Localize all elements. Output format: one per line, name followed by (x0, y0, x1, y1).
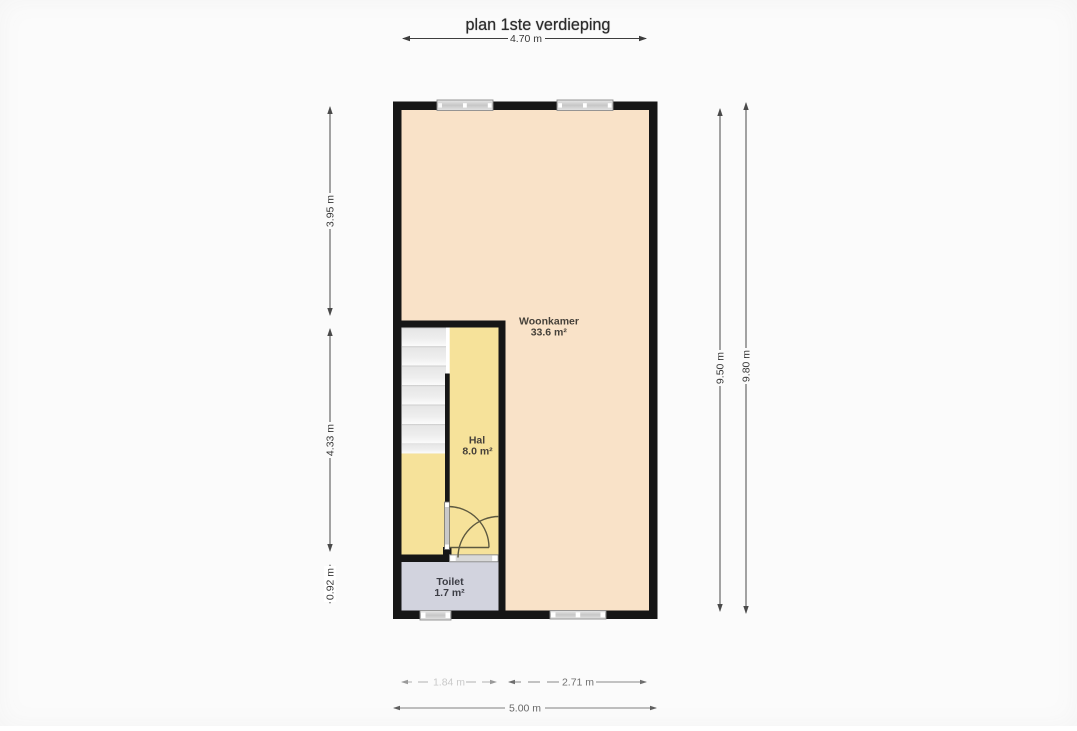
svg-text:5.00 m: 5.00 m (509, 703, 541, 715)
svg-text:1.7 m²: 1.7 m² (434, 587, 465, 599)
svg-text:3.95 m: 3.95 m (325, 195, 337, 227)
svg-text:4.70 m: 4.70 m (510, 33, 542, 45)
svg-text:9.50 m: 9.50 m (715, 352, 727, 384)
svg-text:plan 1ste verdieping: plan 1ste verdieping (466, 16, 611, 34)
svg-text:0.92 m: 0.92 m (325, 568, 337, 600)
svg-text:9.80 m: 9.80 m (741, 350, 753, 382)
svg-text:8.0 m²: 8.0 m² (462, 446, 493, 458)
svg-text:2.71 m: 2.71 m (562, 677, 594, 689)
svg-text:33.6 m²: 33.6 m² (531, 327, 568, 339)
svg-text:4.33 m: 4.33 m (325, 424, 337, 456)
svg-text:1.84 m: 1.84 m (433, 677, 465, 689)
